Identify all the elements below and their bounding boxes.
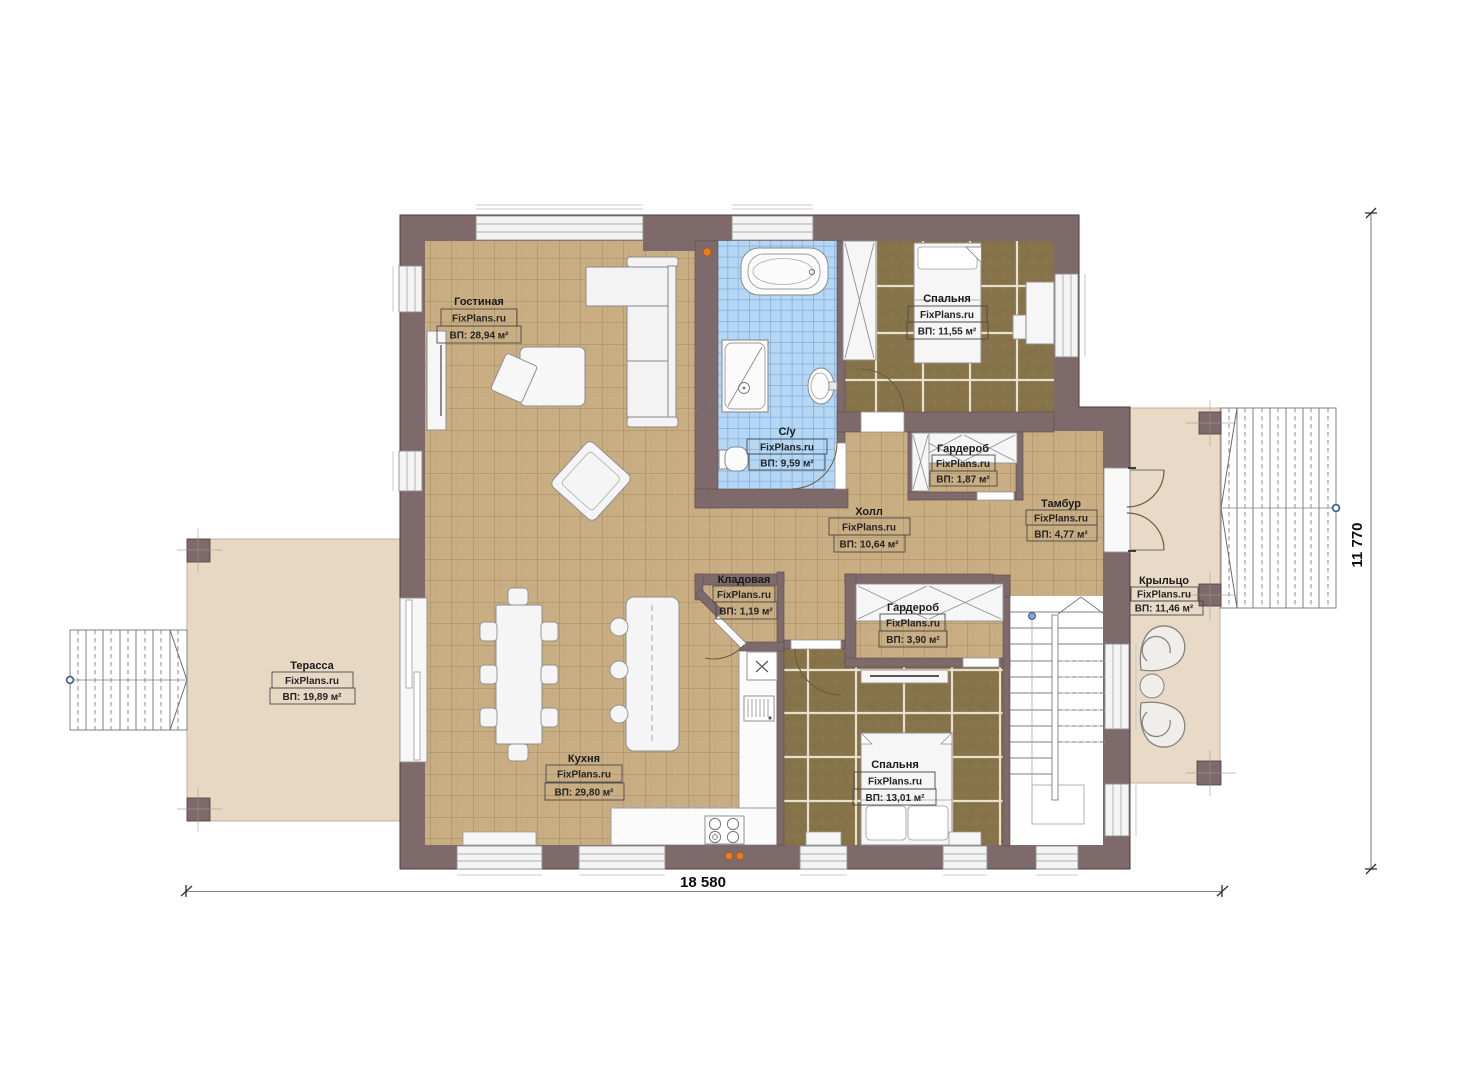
svg-text:Тамбур: Тамбур [1041, 498, 1081, 510]
svg-text:ВП: 19,89 м²: ВП: 19,89 м² [282, 692, 342, 703]
svg-text:FixPlans.ru: FixPlans.ru [868, 777, 922, 788]
svg-text:FixPlans.ru: FixPlans.ru [717, 590, 771, 601]
svg-text:Терасса: Терасса [290, 660, 334, 672]
svg-text:Гардероб: Гардероб [887, 602, 939, 614]
svg-text:FixPlans.ru: FixPlans.ru [936, 459, 990, 470]
svg-text:Гардероб: Гардероб [937, 443, 989, 455]
svg-text:ВП: 4,77 м²: ВП: 4,77 м² [1034, 530, 1088, 541]
svg-text:ВП: 10,64 м²: ВП: 10,64 м² [839, 540, 899, 551]
svg-text:ВП: 13,01 м²: ВП: 13,01 м² [865, 793, 925, 804]
svg-text:FixPlans.ru: FixPlans.ru [285, 676, 339, 687]
svg-text:FixPlans.ru: FixPlans.ru [1137, 590, 1191, 601]
svg-text:ВП: 11,46 м²: ВП: 11,46 м² [1135, 604, 1194, 615]
svg-text:Кладовая: Кладовая [718, 574, 771, 586]
svg-text:ВП: 29,80 м²: ВП: 29,80 м² [554, 788, 614, 799]
svg-text:FixPlans.ru: FixPlans.ru [842, 523, 896, 534]
svg-text:Кухня: Кухня [568, 753, 600, 765]
svg-text:Гостиная: Гостиная [454, 296, 504, 308]
svg-text:Холл: Холл [855, 506, 883, 518]
svg-text:Спальня: Спальня [871, 759, 919, 771]
svg-text:FixPlans.ru: FixPlans.ru [452, 314, 506, 325]
svg-text:FixPlans.ru: FixPlans.ru [760, 443, 814, 454]
svg-text:ВП: 11,55 м²: ВП: 11,55 м² [918, 327, 977, 338]
svg-text:ВП: 1,19 м²: ВП: 1,19 м² [719, 607, 773, 618]
svg-text:FixPlans.ru: FixPlans.ru [886, 619, 940, 630]
svg-text:ВП: 3,90 м²: ВП: 3,90 м² [886, 635, 940, 646]
svg-text:Спальня: Спальня [923, 293, 971, 305]
svg-text:С/у: С/у [778, 426, 796, 438]
svg-text:11 770: 11 770 [1349, 522, 1366, 567]
svg-text:FixPlans.ru: FixPlans.ru [557, 770, 611, 781]
svg-text:FixPlans.ru: FixPlans.ru [1034, 514, 1088, 525]
svg-text:FixPlans.ru: FixPlans.ru [920, 310, 974, 321]
svg-text:ВП: 9,59 м²: ВП: 9,59 м² [760, 459, 814, 470]
svg-text:18 580: 18 580 [680, 874, 726, 891]
svg-text:Крыльцо: Крыльцо [1139, 575, 1189, 587]
svg-text:ВП: 28,94 м²: ВП: 28,94 м² [449, 331, 509, 342]
svg-text:ВП: 1,87 м²: ВП: 1,87 м² [936, 475, 990, 486]
